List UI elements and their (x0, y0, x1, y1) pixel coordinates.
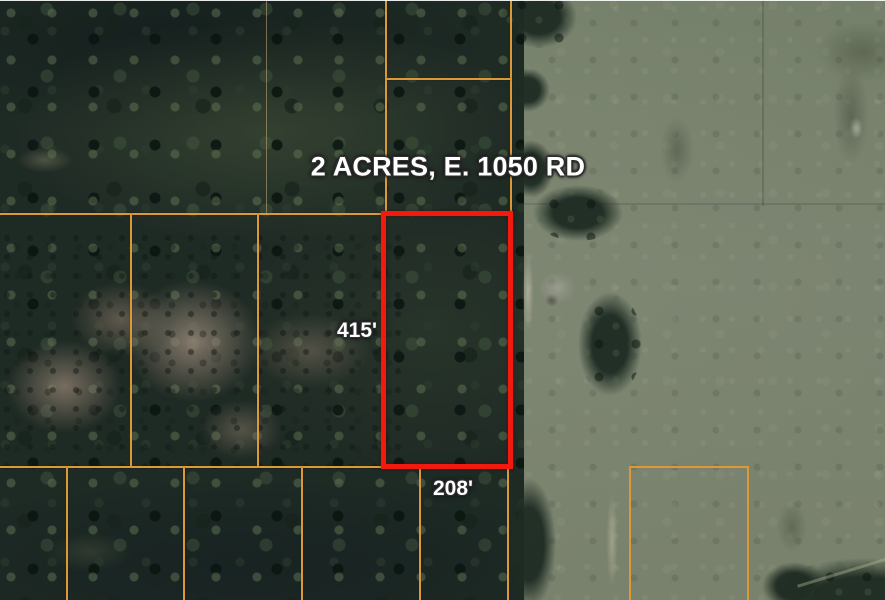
parcel-boundary-line (385, 0, 387, 216)
neighbor-parcel-outline (629, 466, 749, 600)
tree-cluster (502, 478, 556, 600)
parcel-boundary-line (257, 214, 259, 468)
section-line (266, 0, 267, 215)
highlighted-parcel-outline (381, 211, 513, 469)
parcel-title-label: 2 ACRES, E. 1050 RD (311, 152, 585, 183)
tree-cluster (533, 185, 623, 241)
parcel-boundary-line (130, 214, 132, 468)
parcel-depth-label: 415' (337, 319, 377, 343)
parcel-boundary-line (385, 78, 512, 80)
tree-cluster (578, 292, 642, 396)
parcel-width-label: 208' (433, 477, 473, 501)
parcel-boundary-line (66, 468, 68, 600)
parcel-boundary-line (183, 468, 185, 600)
parcel-boundary-line (419, 468, 421, 600)
satellite-map: 2 ACRES, E. 1050 RD 415' 208' (0, 0, 885, 600)
parcel-boundary-line (0, 213, 385, 215)
forest-clearing (0, 233, 402, 473)
imagery-seam-vertical (762, 0, 764, 206)
parcel-boundary-line (507, 468, 509, 600)
image-top-edge (0, 0, 885, 1)
parcel-boundary-line (301, 468, 303, 600)
